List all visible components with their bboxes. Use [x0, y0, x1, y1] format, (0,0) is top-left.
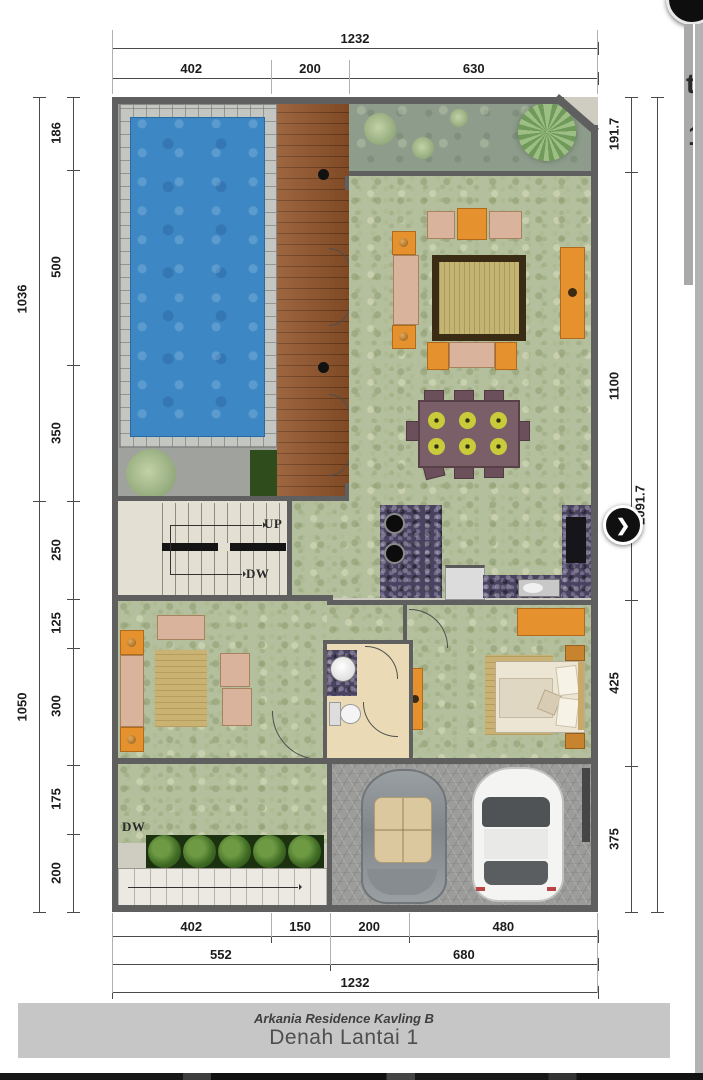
next-image-button[interactable]: ❯: [603, 505, 643, 545]
dim-label: 191.7: [606, 118, 621, 151]
dim-segment: 191.7: [620, 97, 631, 172]
side-table: [495, 342, 517, 370]
wall-stub: [345, 483, 349, 501]
dim-label: 350: [48, 422, 63, 444]
side-table: [392, 325, 416, 349]
wardrobe: [517, 608, 585, 636]
wall-interior: [403, 605, 407, 641]
dim-label: 200: [358, 919, 380, 934]
deck-post: [318, 362, 329, 373]
dim-label: 125: [48, 612, 63, 634]
dim-label: 1036: [14, 285, 29, 314]
refrigerator: [445, 565, 485, 600]
planter-bed: [250, 450, 277, 499]
stove-burner: [384, 513, 405, 534]
wall-interior: [327, 600, 598, 605]
wall-interior: [327, 758, 332, 905]
dim-label: 200: [299, 61, 321, 76]
dim-label: 1232: [341, 31, 370, 46]
side-table: [120, 630, 144, 655]
dim-segment: 630: [349, 67, 598, 78]
dim-label: 200: [48, 862, 63, 884]
door-swing-arc: [363, 702, 398, 737]
stairs-down-label: DW: [246, 566, 269, 582]
wall-interior: [287, 501, 292, 595]
extension-line: [330, 913, 331, 965]
folding-door-arc: [329, 394, 350, 476]
dim-label: 1232: [341, 975, 370, 990]
kitchen-counter-right: [562, 505, 591, 598]
plan-subtitle: Arkania Residence Kavling B: [254, 1011, 434, 1026]
extension-line: [271, 913, 272, 937]
car-roof: [484, 829, 548, 859]
dim-segment: 200: [271, 67, 350, 78]
dim-segment: 680: [330, 953, 598, 964]
car-windshield: [482, 797, 550, 827]
wall-interior: [112, 496, 349, 501]
dim-segment: 402: [112, 925, 271, 936]
extension-line: [597, 913, 598, 993]
dim-label: 630: [463, 61, 485, 76]
stair-hall-floor: [292, 501, 349, 598]
floor-plan: UP DW: [112, 97, 598, 912]
extension-line: [597, 30, 598, 94]
bottom-thumbnail-strip[interactable]: [0, 1073, 703, 1080]
car-rear-window: [484, 861, 548, 885]
dim-segment: 375: [620, 766, 631, 912]
stairs-up-label: UP: [264, 516, 282, 532]
side-table: [392, 231, 416, 255]
sofa-center-table: [457, 208, 487, 240]
console-cabinet: [560, 247, 585, 339]
right-scroll-strip[interactable]: [693, 24, 703, 1080]
dim-segment: 480: [409, 925, 598, 936]
sofa-two-seat: [157, 615, 205, 640]
wall-stub: [345, 176, 349, 190]
bed: [495, 661, 585, 733]
dim-segment: 2091.7: [646, 97, 657, 912]
wall-outer-bottom: [112, 905, 598, 912]
dim-label: 1100: [606, 372, 621, 400]
folding-door-arc: [329, 248, 350, 326]
nightstand: [565, 645, 585, 661]
steps-direction-arrow: [128, 887, 298, 888]
shrub-plant: [412, 137, 434, 159]
dim-segment: 1036: [28, 97, 39, 501]
shrub-plant: [364, 113, 396, 145]
dim-label: 250: [48, 539, 63, 561]
sofa-two-seat: [449, 342, 495, 368]
sofa-seat: [427, 211, 455, 239]
swimming-pool: [130, 117, 265, 437]
toilet-bowl: [340, 704, 361, 724]
dim-left-upper-segments: 186 500 350: [62, 97, 74, 501]
dim-segment: 300: [62, 648, 73, 765]
chevron-right-icon: ❯: [616, 517, 630, 534]
title-bar: Arkania Residence Kavling B Denah Lantai…: [18, 1003, 670, 1058]
deck-post: [318, 169, 329, 180]
wall-outer-right: [591, 125, 598, 912]
carport-side-wall: [582, 768, 590, 842]
wall-outer-top: [112, 97, 564, 104]
bed-pillow: [555, 697, 579, 728]
plan-title: Denah Lantai 1: [269, 1026, 418, 1050]
dim-bottom-row2: 552 680: [112, 953, 598, 965]
dim-label: 1050: [14, 692, 29, 721]
stair-direction-arrow: [170, 525, 262, 526]
dim-right-overall: 2091.7: [646, 97, 658, 912]
dim-label: 402: [180, 919, 202, 934]
dim-segment: 500: [62, 170, 73, 365]
dim-bottom-row1: 402 150 200 480: [112, 925, 598, 937]
car-interior: [374, 797, 432, 863]
armchair: [220, 653, 250, 687]
car-white: [472, 767, 564, 902]
stair-handrail-gap: [218, 543, 230, 551]
dim-segment: 200: [330, 925, 409, 936]
nightstand: [565, 733, 585, 749]
bed-headboard: [578, 662, 584, 730]
dim-segment: 402: [112, 67, 271, 78]
dim-label: 680: [453, 947, 475, 962]
side-garden-lawn: [118, 764, 327, 843]
dim-left-upper-overall: 1036: [28, 97, 40, 501]
dim-segment: 1232: [112, 981, 598, 992]
dim-segment: 150: [271, 925, 330, 936]
dim-segment: 552: [112, 953, 330, 964]
sofa-seat: [489, 211, 522, 239]
dim-label: 186: [48, 122, 63, 144]
dim-label: 175: [48, 789, 63, 811]
dim-top-overall: 1232: [112, 37, 598, 49]
dim-top-segments: 402 200 630: [112, 67, 598, 79]
extension-line: [112, 30, 113, 94]
extension-line: [409, 913, 410, 937]
sofa-long: [393, 255, 419, 325]
dim-segment: 186: [62, 97, 73, 170]
dim-label: 500: [48, 256, 63, 278]
stove-burner: [384, 543, 405, 564]
cooktop-panel: [566, 517, 586, 563]
stair-direction-arrow: [170, 574, 242, 575]
dim-bottom-overall: 1232: [112, 981, 598, 993]
kitchen-sink: [518, 579, 560, 597]
dim-left-lower-overall: 1050: [28, 501, 40, 912]
dim-segment: 200: [62, 834, 73, 912]
side-table: [120, 727, 144, 752]
dim-left-lower-segments: 250 125 300 175 200: [62, 501, 74, 912]
car-taillight: [476, 887, 485, 891]
dim-segment: 425: [620, 600, 631, 766]
hedge-planter: [146, 835, 324, 868]
wall-interior: [112, 758, 598, 764]
dim-label: 425: [606, 672, 621, 694]
car-taillight: [547, 887, 556, 891]
bed-pillow: [555, 665, 579, 696]
dim-segment: 250: [62, 501, 73, 599]
coffee-table: [432, 255, 526, 341]
dim-label: 480: [492, 919, 514, 934]
dim-segment: 1050: [28, 501, 39, 912]
top-right-button[interactable]: [666, 0, 703, 25]
car-gray: [361, 769, 447, 904]
dim-label: 375: [606, 828, 621, 850]
door-swing-arc: [365, 646, 398, 679]
extension-line: [349, 60, 350, 94]
dim-segment: 125: [62, 599, 73, 648]
stair-guide-line: [170, 525, 171, 575]
shrub-plant: [450, 109, 468, 127]
side-table: [427, 342, 449, 370]
garden-down-label: DW: [122, 819, 145, 835]
dim-label: 300: [48, 696, 63, 718]
floor-plan-page: 1232 402 200 630 1036 186 500 350 1050 2…: [0, 0, 703, 1080]
dim-label: 552: [210, 947, 232, 962]
wall-outer-left: [112, 97, 118, 912]
wall-interior: [112, 595, 333, 601]
extension-line: [271, 60, 272, 94]
dim-label: 150: [289, 919, 311, 934]
area-rug: [155, 650, 207, 727]
dim-segment: 1232: [112, 37, 598, 48]
dim-label: 402: [180, 61, 202, 76]
garden-tree: [126, 449, 176, 499]
armchair: [222, 688, 252, 726]
dim-segment: 175: [62, 765, 73, 834]
dim-segment: 350: [62, 365, 73, 501]
extension-line: [112, 913, 113, 993]
sofa-long: [120, 655, 144, 727]
bathroom: [323, 640, 413, 773]
kitchen-counter-left: [380, 505, 442, 598]
car-hood: [367, 869, 437, 895]
bathroom-sink: [330, 656, 356, 682]
dining-table: [418, 400, 520, 468]
